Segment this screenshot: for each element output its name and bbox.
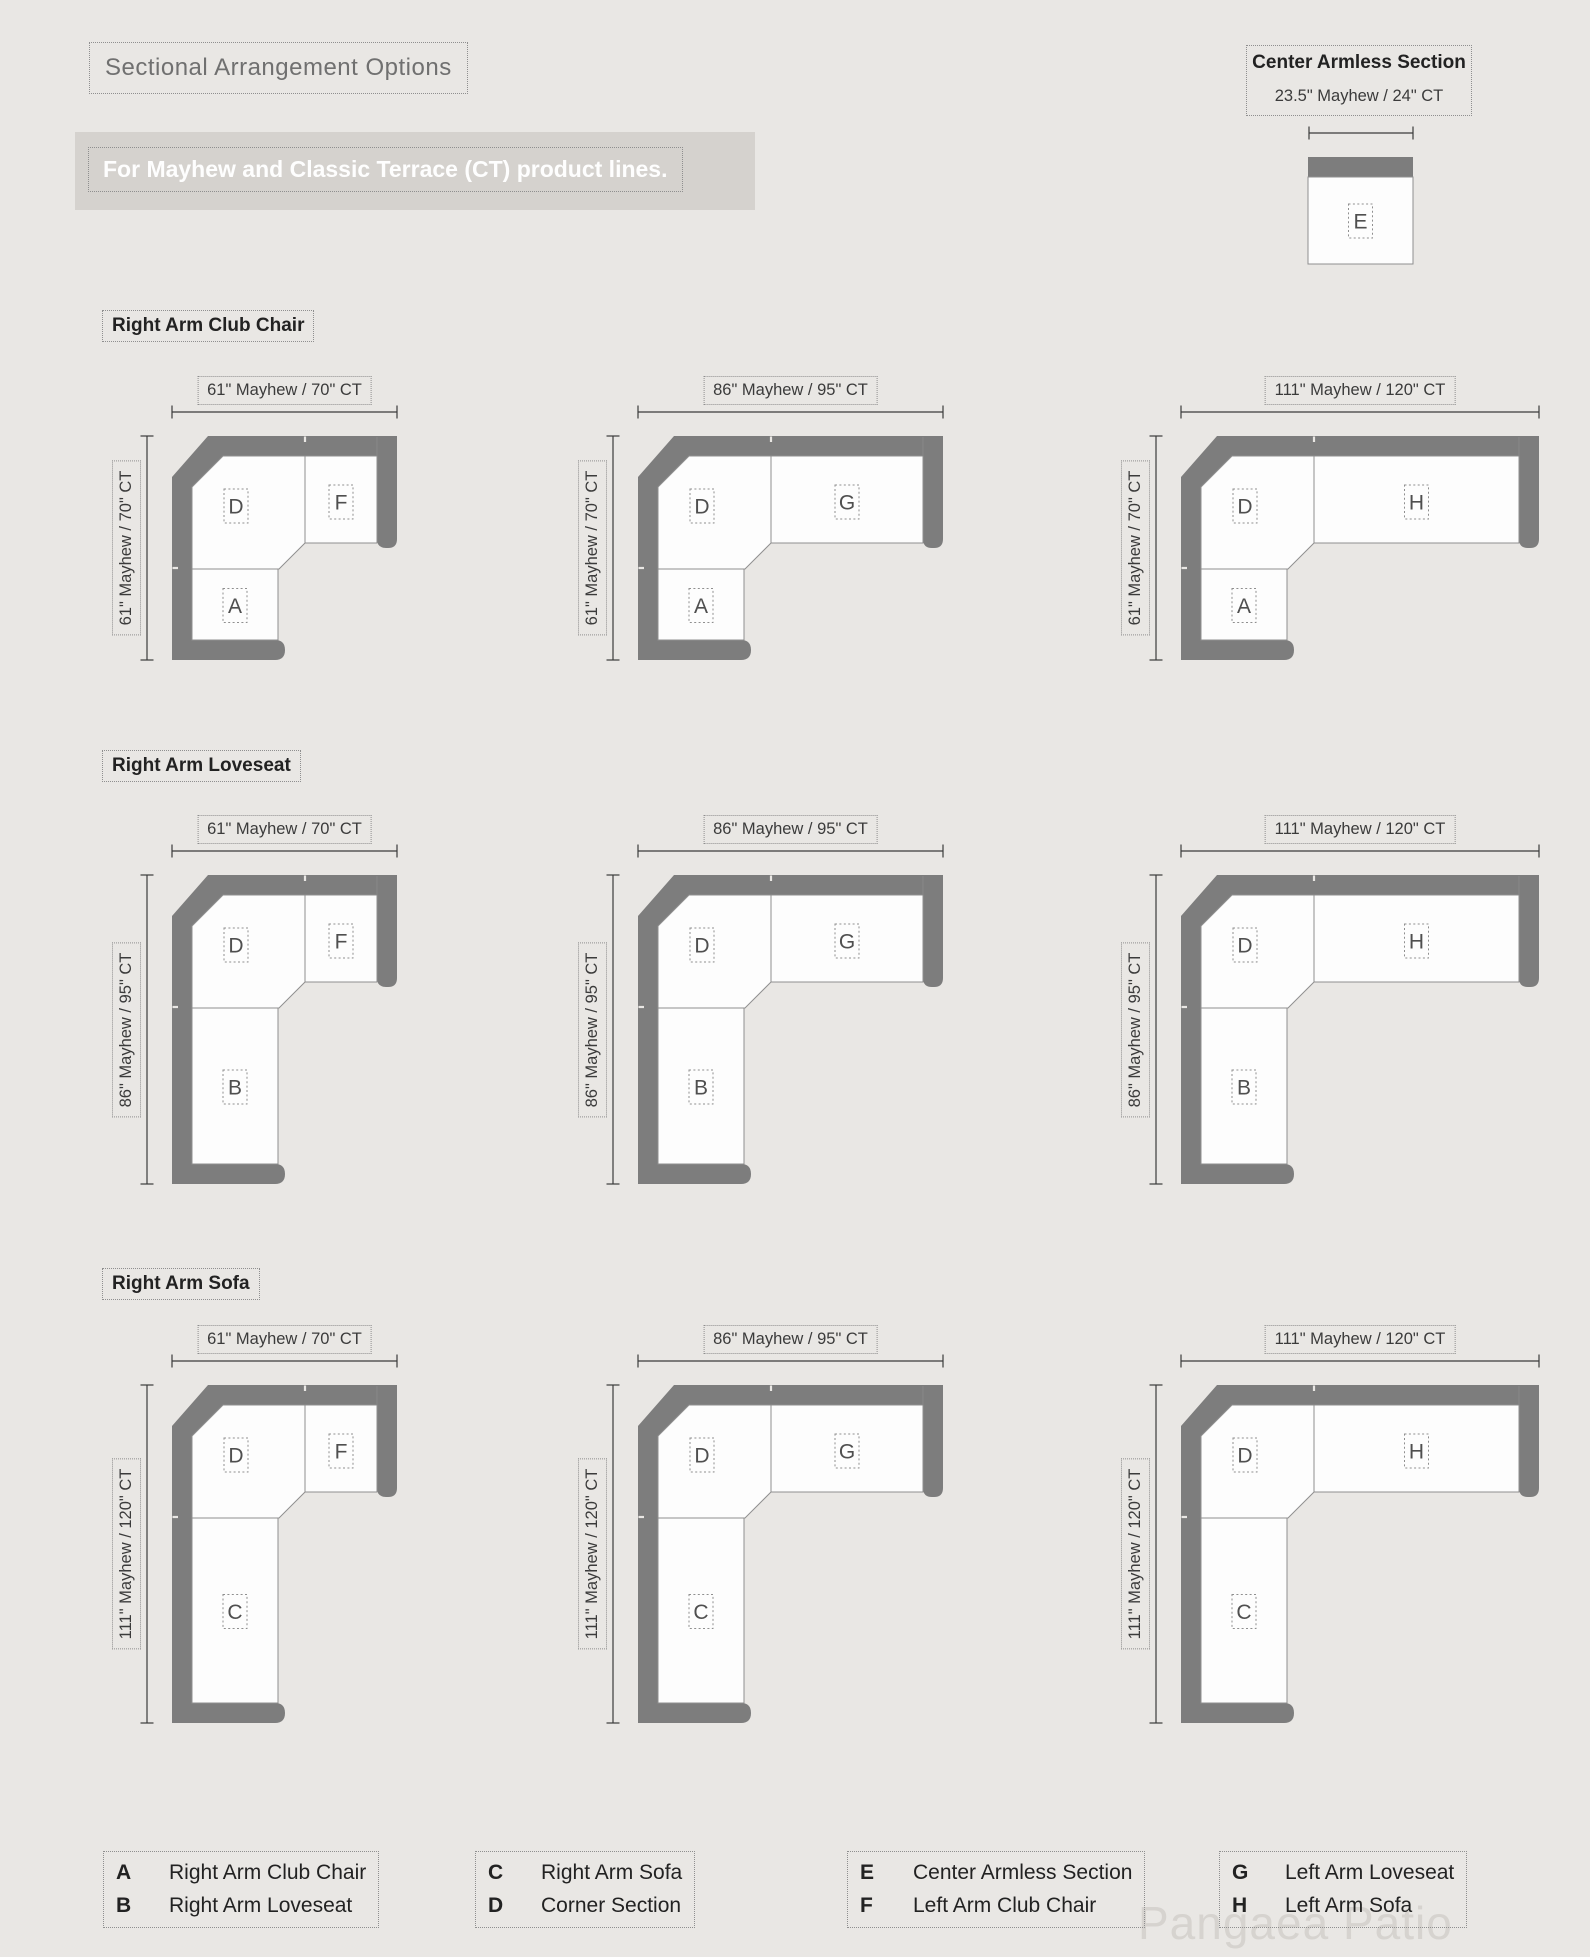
legend-key: F (860, 1893, 913, 1919)
section-letter: H (1409, 1441, 1424, 1464)
section-letter: D (228, 496, 243, 519)
section-letter: B (694, 1077, 708, 1100)
section-letter: D (228, 1445, 243, 1468)
vertical-dimension-label: 86" Mayhew / 95" CT (578, 942, 607, 1117)
center-armless-back (1308, 157, 1413, 177)
right-arm (377, 1385, 397, 1497)
corner-section-seat (658, 895, 771, 1008)
section-letter: G (839, 931, 855, 954)
corner-section-seat (1201, 456, 1314, 569)
section-letter: E (1353, 211, 1367, 234)
section-letter: H (1409, 931, 1424, 954)
legend-label: Left Arm Club Chair (913, 1893, 1132, 1919)
horizontal-dimension-label: 61" Mayhew / 70" CT (197, 376, 372, 405)
section-letter: H (1409, 492, 1424, 515)
legend-key: H (1232, 1893, 1285, 1919)
sectional-diagram-r2c2: DHC (1150, 1355, 1540, 1724)
section-letter: C (1236, 1601, 1251, 1624)
section-letter: C (693, 1601, 708, 1624)
sectional-diagram-r0c1: DGA (607, 406, 944, 661)
horizontal-dimension-label: 61" Mayhew / 70" CT (197, 815, 372, 844)
sectional-diagram-r1c2: DHB (1150, 845, 1540, 1185)
vertical-dimension-label: 111" Mayhew / 120" CT (112, 1459, 141, 1650)
right-arm (377, 875, 397, 987)
corner-section-seat (192, 895, 305, 1008)
right-arm (1519, 1385, 1539, 1497)
right-arm (923, 1385, 943, 1497)
vertical-dimension-label: 111" Mayhew / 120" CT (1121, 1459, 1150, 1650)
horizontal-dimension-label: 111" Mayhew / 120" CT (1265, 1325, 1456, 1354)
section-letter: B (228, 1077, 242, 1100)
sectional-diagram-r0c0: DFA (141, 406, 398, 661)
section-letter: C (227, 1601, 242, 1624)
corner-section-seat (658, 456, 771, 569)
center-armless-diagram: E (1308, 127, 1413, 265)
legend-label: Left Arm Sofa (1285, 1893, 1454, 1919)
right-arm (923, 436, 943, 548)
section-letter: D (1237, 496, 1252, 519)
section-letter: G (839, 1441, 855, 1464)
section-letter: B (1237, 1077, 1251, 1100)
section-letter: F (335, 492, 348, 515)
legend-label: Right Arm Loveseat (169, 1893, 366, 1919)
legend-key: B (116, 1893, 169, 1919)
right-arm (1519, 436, 1539, 548)
legend-label: Left Arm Loveseat (1285, 1860, 1454, 1886)
section-letter: D (694, 935, 709, 958)
legend-label: Corner Section (541, 1893, 682, 1919)
corner-section-seat (192, 456, 305, 569)
legend-key: C (488, 1860, 541, 1886)
right-arm (377, 436, 397, 548)
sectional-diagrams-canvas: DFADGADHADFBDGBDHBDFCDGCDHCE (0, 0, 1590, 1957)
legend-label: Center Armless Section (913, 1860, 1132, 1886)
section-letter: F (335, 1441, 348, 1464)
corner-section-seat (658, 1405, 771, 1518)
sectional-diagram-r1c1: DGB (607, 845, 944, 1185)
vertical-dimension-label: 61" Mayhew / 70" CT (112, 461, 141, 636)
section-letter: D (694, 1445, 709, 1468)
section-letter: D (228, 935, 243, 958)
horizontal-dimension-label: 86" Mayhew / 95" CT (703, 1325, 878, 1354)
legend-group-gh: G Left Arm Loveseat H Left Arm Sofa (1219, 1851, 1467, 1928)
vertical-dimension-label: 111" Mayhew / 120" CT (578, 1459, 607, 1650)
horizontal-dimension-label: 111" Mayhew / 120" CT (1265, 376, 1456, 405)
sectional-diagram-r2c0: DFC (141, 1355, 398, 1724)
section-letter: D (1237, 935, 1252, 958)
sectional-diagram-r0c2: DHA (1150, 406, 1540, 661)
section-letter: D (1237, 1445, 1252, 1468)
corner-section-seat (1201, 1405, 1314, 1518)
legend-key: G (1232, 1860, 1285, 1886)
section-letter: F (335, 931, 348, 954)
corner-section-seat (192, 1405, 305, 1518)
section-letter: A (228, 595, 242, 618)
legend-label: Right Arm Sofa (541, 1860, 682, 1886)
section-letter: A (694, 595, 708, 618)
right-arm (1519, 875, 1539, 987)
legend: A Right Arm Club Chair B Right Arm Loves… (0, 1851, 1590, 1931)
sectional-arrangement-sheet: { "page": { "title": "Sectional Arrangem… (0, 0, 1590, 1957)
vertical-dimension-label: 61" Mayhew / 70" CT (578, 461, 607, 636)
section-letter: A (1237, 595, 1251, 618)
legend-key: A (116, 1860, 169, 1886)
horizontal-dimension-label: 61" Mayhew / 70" CT (197, 1325, 372, 1354)
horizontal-dimension-label: 86" Mayhew / 95" CT (703, 376, 878, 405)
vertical-dimension-label: 86" Mayhew / 95" CT (112, 942, 141, 1117)
legend-key: D (488, 1893, 541, 1919)
legend-group-cd: C Right Arm Sofa D Corner Section (475, 1851, 695, 1928)
section-letter: D (694, 496, 709, 519)
right-arm (923, 875, 943, 987)
vertical-dimension-label: 61" Mayhew / 70" CT (1121, 461, 1150, 636)
legend-key: E (860, 1860, 913, 1886)
legend-group-ab: A Right Arm Club Chair B Right Arm Loves… (103, 1851, 379, 1928)
horizontal-dimension-label: 111" Mayhew / 120" CT (1265, 815, 1456, 844)
vertical-dimension-label: 86" Mayhew / 95" CT (1121, 942, 1150, 1117)
corner-section-seat (1201, 895, 1314, 1008)
horizontal-dimension-label: 86" Mayhew / 95" CT (703, 815, 878, 844)
sectional-diagram-r2c1: DGC (607, 1355, 944, 1724)
legend-group-ef: E Center Armless Section F Left Arm Club… (847, 1851, 1145, 1928)
legend-label: Right Arm Club Chair (169, 1860, 366, 1886)
section-letter: G (839, 492, 855, 515)
sectional-diagram-r1c0: DFB (141, 845, 398, 1185)
